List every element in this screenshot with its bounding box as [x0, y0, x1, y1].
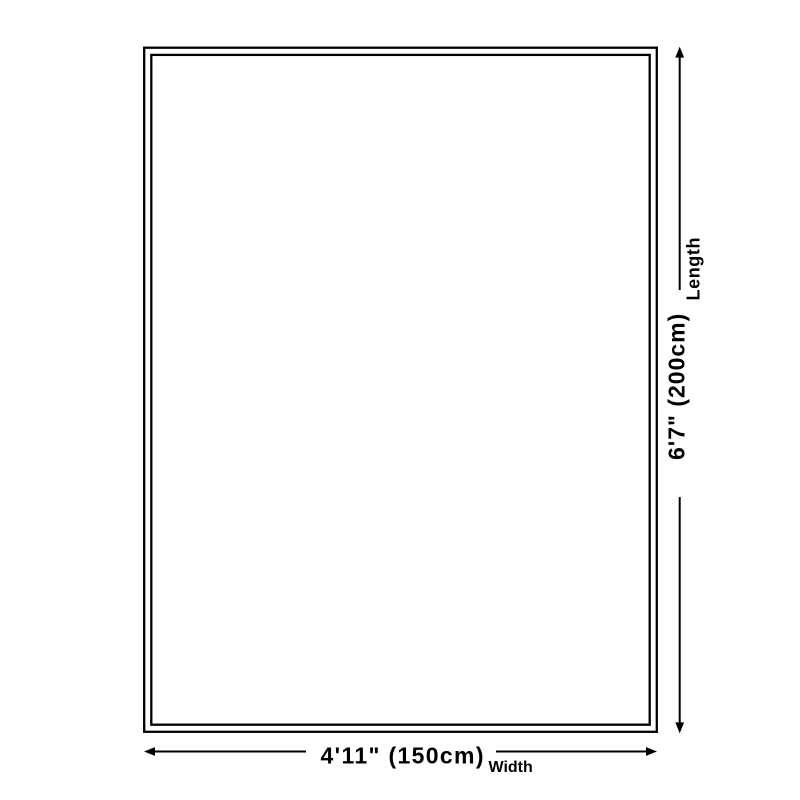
svg-text:Width: Width [489, 759, 533, 776]
svg-text:6'7" (200cm): 6'7" (200cm) [664, 313, 690, 460]
svg-text:Length: Length [684, 237, 704, 301]
svg-text:4'11" (150cm): 4'11" (150cm) [321, 743, 485, 769]
